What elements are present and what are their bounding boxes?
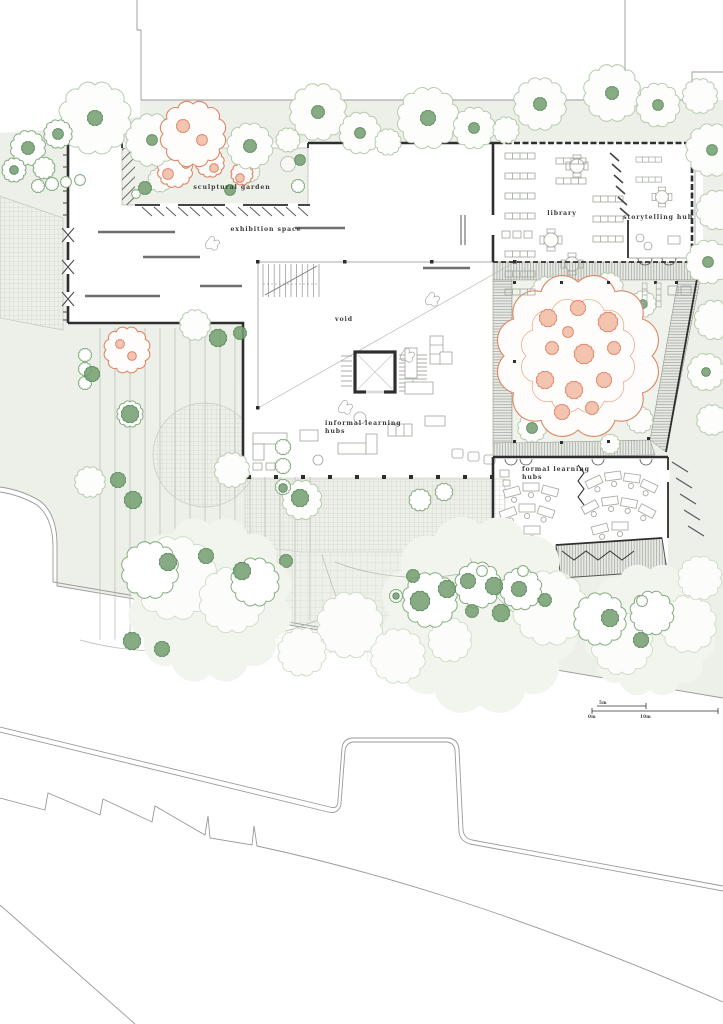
label-informal-learning-2: hubs [325, 428, 345, 435]
label-exhibition-space: exhibition space [230, 226, 301, 233]
scale-bar: 0m 5m 10m [588, 700, 718, 719]
floor-plan-canvas: sculptural garden exhibition space libra… [0, 0, 723, 1024]
label-void: void [334, 316, 353, 323]
label-storytelling-hub: storytelling hub [623, 214, 693, 221]
elevator-core [355, 352, 395, 392]
courtyard [493, 262, 700, 457]
label-informal-learning-1: informal learning [325, 420, 402, 427]
scale-5m: 5m [599, 700, 607, 705]
label-sculptural-garden: sculptural garden [193, 184, 270, 191]
label-formal-learning-2: hubs [522, 474, 542, 481]
scale-10m: 10m [640, 714, 651, 719]
label-library: library [547, 210, 576, 217]
scale-0m: 0m [588, 714, 596, 719]
label-formal-learning-1: formal learning [522, 466, 590, 473]
context-roads [0, 727, 723, 1024]
courtyard-feature-tree [498, 276, 659, 437]
architectural-plan: sculptural garden exhibition space libra… [0, 0, 723, 1024]
